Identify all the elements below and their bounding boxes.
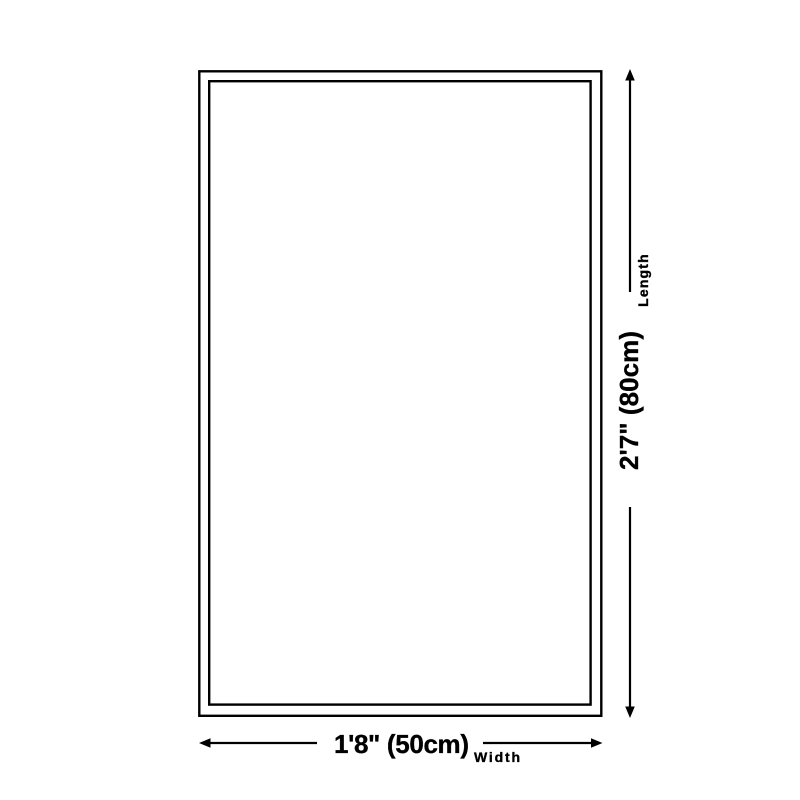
svg-text:Width: Width [474, 749, 520, 765]
svg-text:2'7" (80cm): 2'7" (80cm) [614, 331, 644, 470]
svg-text:Length: Length [635, 254, 651, 307]
svg-text:1'8" (50cm): 1'8" (50cm) [334, 729, 469, 759]
